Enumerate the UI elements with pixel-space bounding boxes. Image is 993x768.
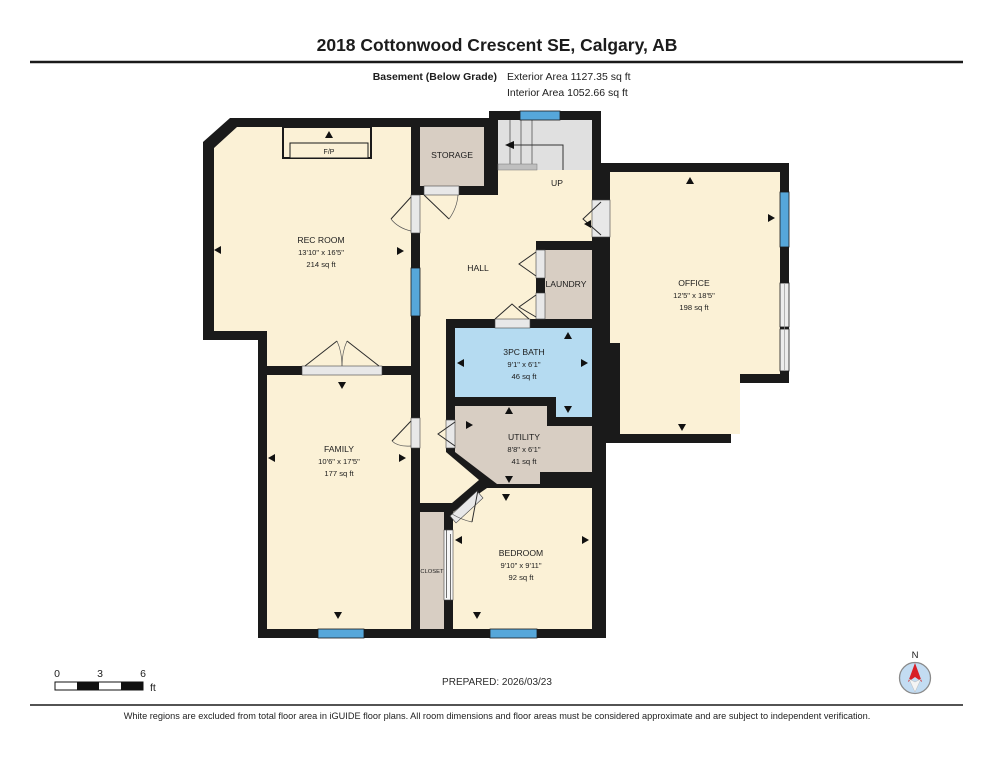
fireplace-label: F/P: [324, 149, 335, 156]
closet-name: CLOSET: [420, 569, 444, 575]
family-area: 177 sq ft: [324, 469, 354, 478]
scale-tick-3: 3: [97, 668, 103, 680]
office-window-right-upper: [780, 192, 789, 247]
french-door-sill: [302, 366, 382, 375]
prepared-date: PREPARED: 2026/03/23: [442, 677, 552, 688]
office-area: 198 sq ft: [679, 303, 709, 312]
stairs-up-label: UP: [551, 178, 563, 188]
family-door-sill: [411, 418, 420, 448]
hall-name: HALL: [467, 263, 489, 273]
interior-area: Interior Area 1052.66 sq ft: [507, 87, 628, 99]
bedroom-area: 92 sq ft: [509, 573, 535, 582]
exterior-area: Exterior Area 1127.35 sq ft: [507, 71, 631, 83]
room-bedroom: [453, 488, 592, 629]
scale-tick-0: 0: [54, 668, 60, 680]
storage-name: STORAGE: [431, 150, 473, 160]
stairs-window: [520, 111, 560, 120]
closet-slider: [444, 530, 453, 600]
bedroom-name: BEDROOM: [499, 548, 543, 558]
bath-area: 46 sq ft: [512, 372, 538, 381]
room-family: [267, 375, 411, 629]
bath-dims: 9'1" x 6'1": [507, 360, 541, 369]
compass-north-label: N: [912, 650, 919, 661]
disclaimer-text: White regions are excluded from total fl…: [124, 711, 871, 721]
laundry-door-upper-sill: [536, 250, 545, 278]
utility-door-sill: [446, 420, 455, 448]
bedroom-dims: 9'10" x 9'11": [500, 561, 541, 570]
utility-name: UTILITY: [508, 432, 540, 442]
compass: N: [900, 650, 931, 694]
family-name: FAMILY: [324, 444, 354, 454]
floor-label: Basement (Below Grade): [373, 71, 497, 83]
family-window: [318, 629, 364, 638]
floorplan-canvas: 2018 Cottonwood Crescent SE, Calgary, AB…: [0, 0, 993, 768]
scale-bar: 0 3 6 ft: [54, 668, 156, 694]
storage-door-sill: [424, 186, 459, 195]
rec-room-dims: 13'10" x 16'5": [298, 248, 344, 257]
hall-rec-window: [411, 268, 420, 316]
floorplan-page: 2018 Cottonwood Crescent SE, Calgary, AB…: [0, 0, 993, 768]
utility-dims: 8'8" x 6'1": [507, 445, 541, 454]
laundry-name: LAUNDRY: [546, 279, 587, 289]
office-dims: 12'5" x 18'5": [673, 291, 715, 300]
rec-door-sill: [411, 195, 420, 233]
family-dims: 10'6" x 17'5": [318, 457, 360, 466]
bedroom-window: [490, 629, 537, 638]
fireplace: F/P: [283, 127, 371, 158]
room-rec-room: [214, 127, 411, 366]
utility-area: 41 sq ft: [512, 457, 538, 466]
office-name: OFFICE: [678, 278, 710, 288]
bath-name: 3PC BATH: [503, 347, 544, 357]
scale-unit: ft: [150, 682, 156, 694]
page-title: 2018 Cottonwood Crescent SE, Calgary, AB: [317, 35, 678, 55]
office-door-sill: [592, 200, 610, 237]
rec-room-name: REC ROOM: [297, 235, 344, 245]
rec-room-area: 214 sq ft: [306, 260, 336, 269]
scale-tick-6: 6: [140, 668, 146, 680]
bath-door-sill: [495, 319, 530, 328]
laundry-door-lower-sill: [536, 293, 545, 319]
